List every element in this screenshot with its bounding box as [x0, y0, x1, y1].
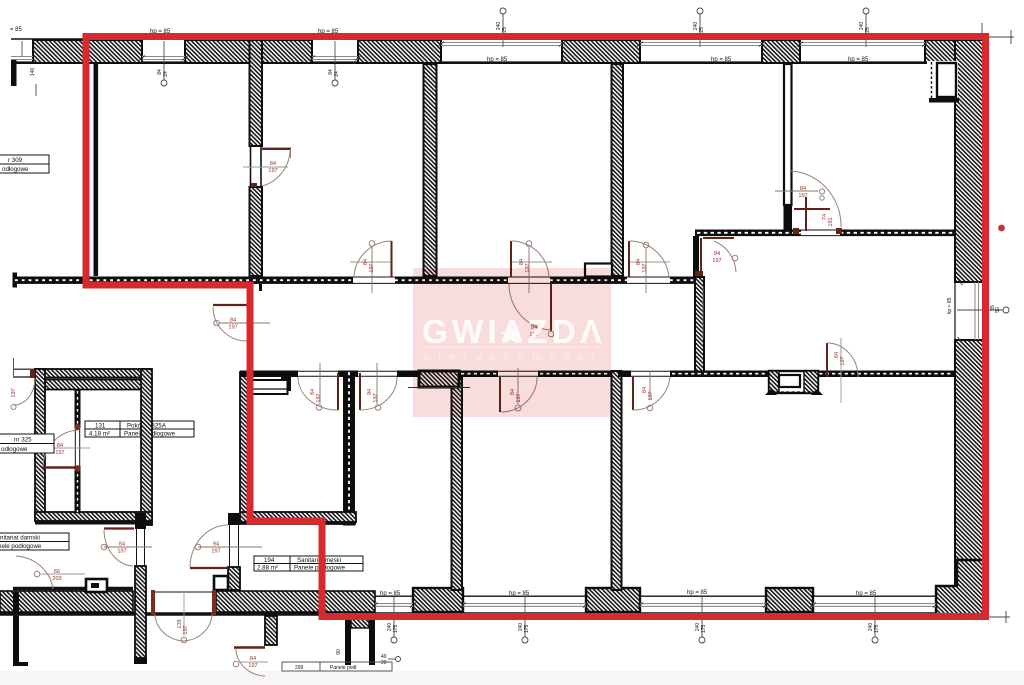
svg-text:84: 84 — [230, 318, 236, 324]
svg-text:hp = 85: hp = 85 — [947, 297, 953, 314]
svg-text:nr 325: nr 325 — [14, 437, 32, 444]
svg-text:197: 197 — [211, 549, 220, 555]
svg-text:194: 194 — [264, 557, 275, 564]
svg-text:84: 84 — [119, 542, 125, 548]
svg-text:197: 197 — [117, 549, 126, 555]
svg-text:50: 50 — [995, 307, 1001, 313]
svg-text:299: 299 — [295, 665, 304, 671]
svg-text:197: 197 — [369, 263, 375, 272]
svg-text:hp = 85: hp = 85 — [687, 590, 708, 596]
svg-text:hp = 85: hp = 85 — [509, 591, 530, 597]
svg-text:197: 197 — [11, 388, 17, 397]
svg-text:175: 175 — [874, 625, 880, 634]
svg-text:hp = 85: hp = 85 — [848, 57, 869, 63]
svg-text:odłogowe: odłogowe — [2, 166, 29, 173]
svg-text:25: 25 — [865, 27, 871, 33]
svg-text:84: 84 — [250, 656, 256, 662]
svg-text:175: 175 — [524, 625, 530, 634]
svg-text:25: 25 — [699, 27, 705, 33]
svg-text:175: 175 — [393, 625, 399, 634]
svg-text:20: 20 — [381, 660, 387, 666]
svg-text:hp = 85: hp = 85 — [380, 591, 401, 597]
svg-text:191: 191 — [828, 217, 834, 226]
svg-text:r 309: r 309 — [8, 157, 23, 164]
svg-text:197: 197 — [712, 258, 721, 264]
svg-text:hp = 85: hp = 85 — [711, 57, 732, 63]
svg-text:84: 84 — [57, 443, 63, 449]
svg-text:197: 197 — [648, 391, 654, 400]
svg-text:175: 175 — [701, 625, 707, 634]
svg-text:4.18 m²: 4.18 m² — [89, 431, 110, 438]
svg-text:146: 146 — [30, 68, 36, 77]
svg-text:197: 197 — [642, 263, 648, 272]
svg-text:25: 25 — [502, 27, 508, 33]
svg-text:odłogowe: odłogowe — [1, 446, 28, 453]
svg-text:nitariat damski: nitariat damski — [0, 535, 40, 542]
svg-text:197: 197 — [268, 168, 277, 174]
svg-text:Panele podł: Panele podł — [330, 665, 357, 671]
svg-text:nele podłogowe: nele podłogowe — [0, 543, 42, 550]
svg-text:66: 66 — [54, 569, 60, 575]
svg-text:84: 84 — [800, 186, 806, 192]
svg-text:131: 131 — [95, 423, 106, 430]
svg-text:197: 197 — [248, 663, 257, 669]
svg-text:24: 24 — [334, 71, 340, 77]
svg-text:203: 203 — [52, 576, 61, 582]
svg-text:197: 197 — [316, 393, 322, 402]
svg-text:197: 197 — [228, 325, 237, 331]
svg-text:= 85: = 85 — [10, 27, 23, 33]
svg-text:197: 197 — [798, 193, 807, 199]
svg-text:hp = 85: hp = 85 — [856, 591, 877, 597]
svg-text:2.88 m²: 2.88 m² — [257, 565, 278, 572]
svg-text:197: 197 — [373, 393, 379, 402]
svg-text:24: 24 — [163, 71, 169, 77]
svg-text:197: 197 — [55, 450, 64, 456]
svg-text:84: 84 — [714, 251, 720, 257]
svg-text:90: 90 — [336, 649, 342, 655]
svg-text:84: 84 — [270, 161, 276, 167]
svg-text:94: 94 — [213, 542, 219, 548]
svg-text:nieruchomości: nieruchomości — [424, 351, 600, 363]
svg-text:hp = 85: hp = 85 — [487, 57, 508, 63]
svg-text:197: 197 — [183, 625, 189, 634]
